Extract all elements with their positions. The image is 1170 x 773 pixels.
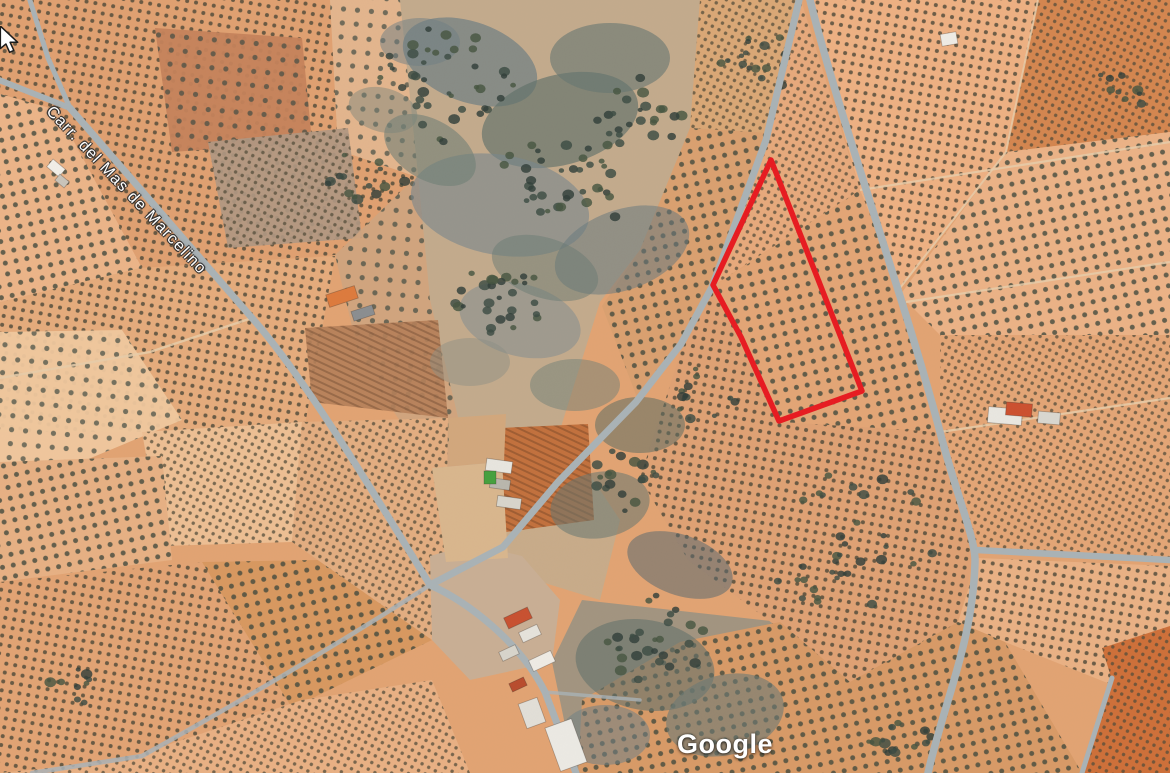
satellite-map-svg[interactable] — [0, 0, 1170, 773]
satellite-map[interactable]: Carr. del Mas de Marcelino Google — [0, 0, 1170, 773]
google-watermark[interactable]: Google — [677, 729, 773, 760]
grain-overlay — [0, 0, 1170, 773]
